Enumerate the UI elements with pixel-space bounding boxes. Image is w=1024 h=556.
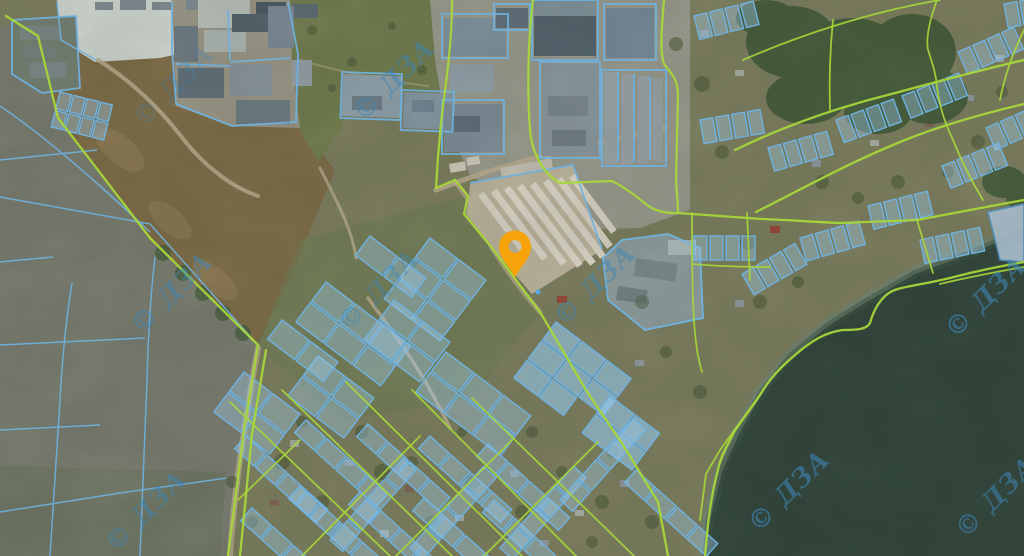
cadastral-map-canvas[interactable]: © ДЗА © ДЗА © ДЗА © ДЗА © ДЗА © ДЗА © ДЗ… [0, 0, 1024, 556]
map-viewport[interactable]: © ДЗА © ДЗА © ДЗА © ДЗА © ДЗА © ДЗА © ДЗ… [0, 0, 1024, 556]
